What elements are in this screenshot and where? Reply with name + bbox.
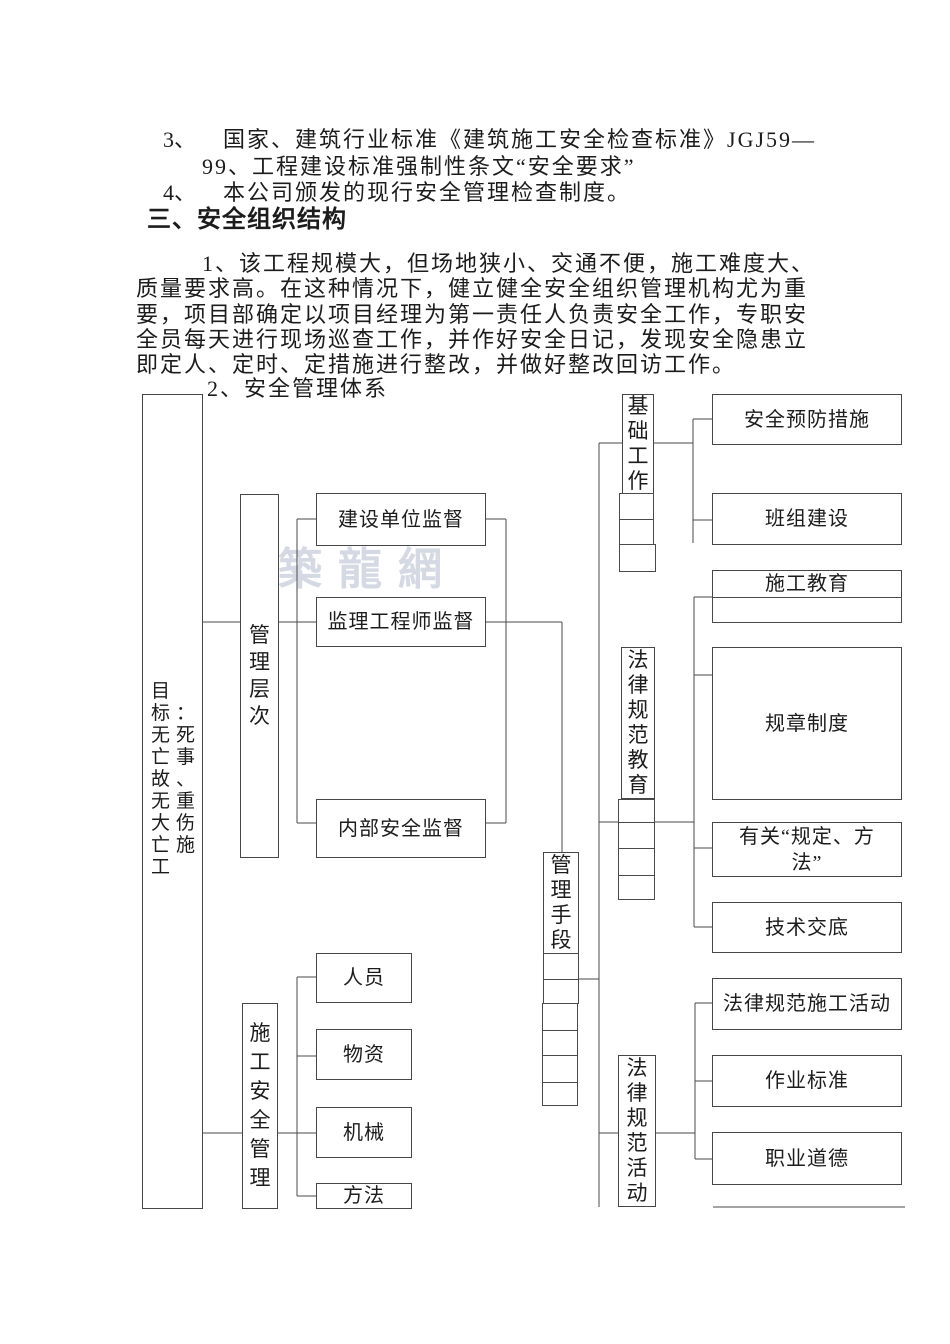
flowchart-box-safety-precautions: 安全预防措施	[712, 394, 902, 445]
flowchart-box-construction-unit-supervision: 建设单位监督	[316, 493, 486, 546]
empty-cell	[618, 875, 655, 900]
document-page: 3、 国家、建筑行业标准《建筑施工安全检查标准》JGJ59— 99、工程建设标准…	[0, 0, 950, 1344]
flowchart-box-legal-norm-education: 法 律 规 范 教 育	[621, 647, 655, 799]
flowchart-box-materials: 物资	[316, 1029, 412, 1080]
flowchart-box-goal: 目 标： 无死 亡事 故、 无重 大伤 亡施 工	[142, 394, 203, 1209]
flowchart-box-construction-education: 施工教育	[712, 570, 902, 598]
flowchart-box-related-provisions: 有关“规定、方 法”	[712, 822, 902, 877]
flowchart-box-machinery: 机械	[316, 1107, 412, 1158]
flowchart-box-work-standards: 作业标准	[712, 1055, 902, 1107]
empty-cell	[543, 953, 579, 980]
empty-cell	[712, 597, 902, 623]
flowchart-box-construction-safety-management: 施 工 安 全 管 理	[242, 1003, 278, 1209]
empty-cell	[619, 493, 654, 520]
empty-cell	[619, 544, 656, 572]
flowchart-box-technical-disclosure: 技术交底	[712, 902, 902, 953]
flowchart-box-rules-regulations: 规章制度	[712, 647, 902, 800]
flowchart-box-team-building: 班组建设	[712, 493, 902, 545]
flowchart-box-supervising-engineer-supervision: 监理工程师监督	[316, 597, 486, 647]
flowchart-box-legal-norm-construction-activity: 法律规范施工活动	[712, 978, 902, 1030]
empty-cell	[542, 1055, 578, 1083]
flowchart-box-internal-safety-supervision: 内部安全监督	[316, 799, 486, 858]
empty-cell	[542, 1030, 578, 1056]
flowchart-box-management-levels: 管 理 层 次	[240, 494, 279, 858]
empty-cell	[618, 799, 655, 823]
empty-cell	[618, 848, 655, 876]
empty-cell	[543, 979, 579, 1004]
flowchart-box-personnel: 人员	[316, 953, 412, 1003]
flowchart-box-legal-norm-activities: 法 律 规 范 活 动	[618, 1055, 656, 1207]
flowchart-box-methods: 方法	[316, 1183, 412, 1209]
empty-cell	[542, 1003, 578, 1031]
empty-cell	[619, 519, 654, 545]
flowchart-box-management-means: 管 理 手 段	[543, 852, 579, 954]
flowchart-box-professional-ethics: 职业道德	[712, 1132, 902, 1185]
empty-cell	[618, 822, 655, 849]
empty-cell	[542, 1082, 578, 1106]
flowchart-box-basic-work: 基 础 工 作	[622, 394, 654, 494]
